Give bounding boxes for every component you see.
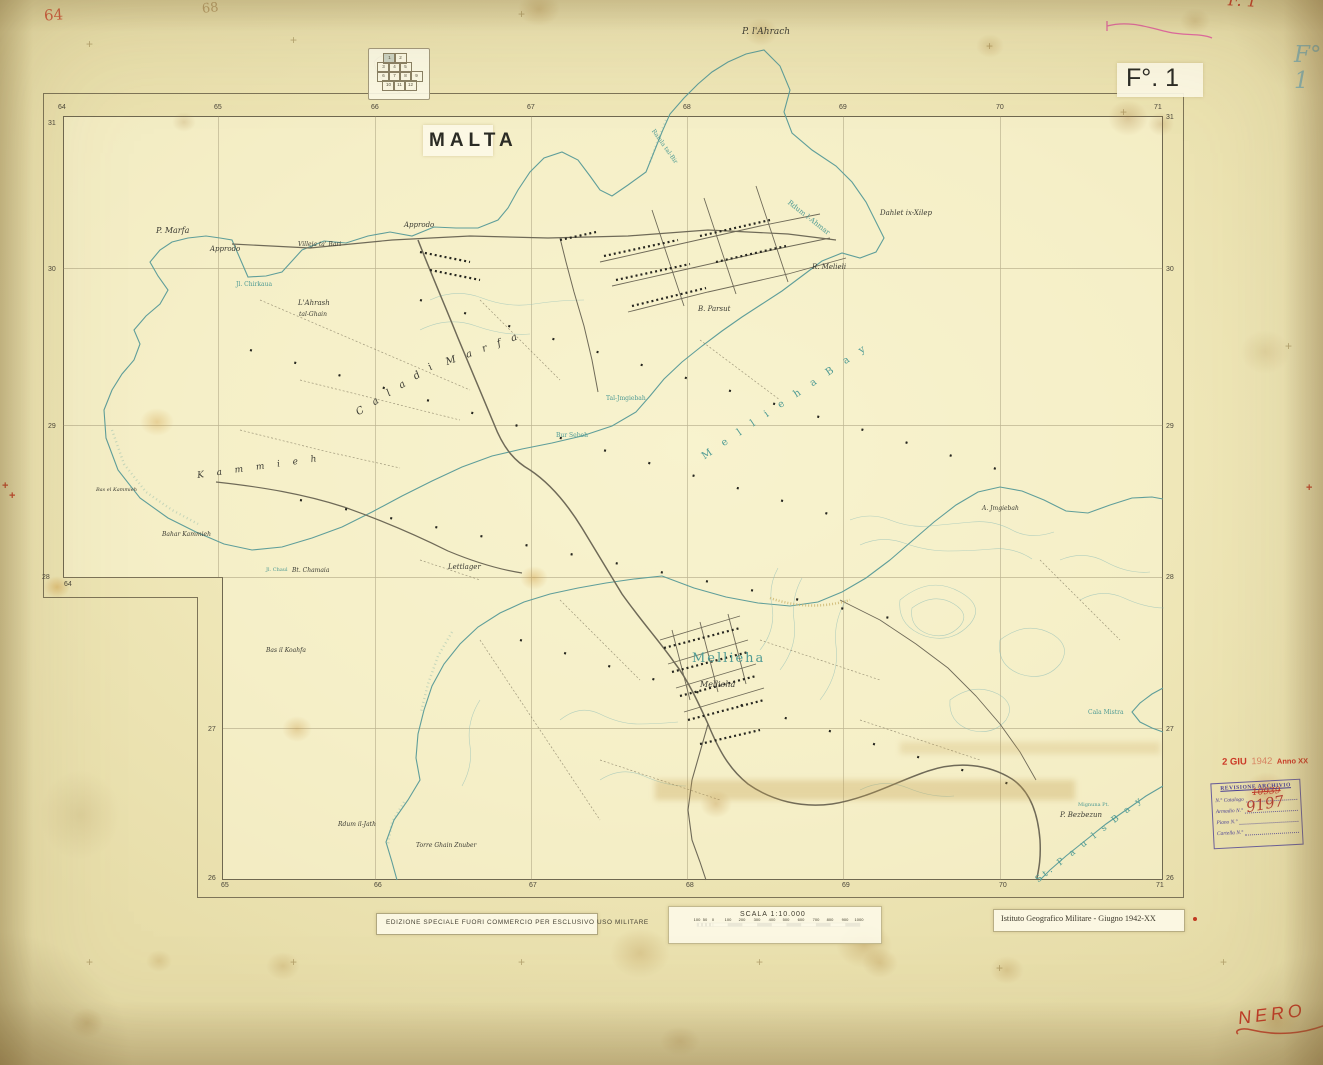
registration-cross: + — [1120, 106, 1127, 118]
map-label: Bur Sebeh — [556, 433, 588, 439]
map-label: Villeja ta' Bari — [298, 242, 341, 248]
registration-cross: + — [996, 962, 1003, 974]
map-label: L'Ahrash — [298, 300, 330, 307]
map-label: A. Jmgiebah — [982, 506, 1019, 512]
grid-number: 69 — [839, 104, 847, 111]
archive-stamp-row-label: Cartella N.° — [1217, 830, 1244, 837]
index-cell: 12 — [404, 80, 417, 91]
grid-number: 64 — [58, 104, 66, 111]
pencil-note-68: 68 — [201, 1, 219, 16]
nero-underline — [1232, 1022, 1323, 1042]
registration-cross: + — [290, 956, 297, 968]
date-stamp: 2 GIU 1942 Anno XX — [1222, 750, 1308, 770]
map-label: Mellieha — [700, 681, 735, 689]
map-label: P. l'Ahrach — [742, 28, 790, 37]
map-label: Jl. Chirkaua — [236, 282, 272, 288]
scale-tick: 100 — [725, 918, 732, 922]
registration-cross: + — [756, 956, 763, 968]
grid-number: 71 — [1154, 104, 1162, 111]
map-label: Approdo — [404, 222, 434, 229]
grid-number: 27 — [208, 726, 216, 733]
grid-number: 28 — [42, 574, 50, 581]
grid-number: 31 — [48, 120, 56, 127]
grid-number: 66 — [374, 882, 382, 889]
grid-number: 64 — [64, 581, 72, 588]
map-label: P. Marfa — [156, 227, 189, 235]
grid-number: 28 — [1166, 574, 1174, 581]
sheet-number: F°. 1 — [1126, 64, 1179, 93]
map-label: Jl. Chaul — [266, 568, 288, 573]
date-stamp-year: 1942 — [1251, 756, 1272, 767]
grid-number: 26 — [208, 875, 216, 882]
map-label: Cala Mistra — [1088, 710, 1124, 716]
scale-tick: 900 — [842, 918, 849, 922]
scale-tick: 700 — [813, 918, 820, 922]
grid-number: 26 — [1166, 875, 1174, 882]
grid-number: 68 — [683, 104, 691, 111]
scale-tick: 400 — [769, 918, 776, 922]
map-label: Approdo — [210, 246, 240, 253]
scale-tick: 50 — [703, 918, 707, 922]
archive-stamp-row-label: Piano N.° — [1216, 819, 1238, 826]
grid-number: 65 — [221, 882, 229, 889]
scale-tick: 300 — [754, 918, 761, 922]
pencil-note-64: 64 — [44, 7, 64, 23]
map-label: Rdum il-Jath — [338, 822, 376, 828]
map-label: tal-Ghain — [299, 312, 327, 318]
red-dot-mark — [1193, 917, 1197, 921]
grid-number: 29 — [48, 423, 56, 430]
grid-number: 29 — [1166, 423, 1174, 430]
map-label: Dahlet ix-Xilep — [880, 210, 932, 217]
registration-cross: + — [86, 38, 93, 50]
map-label: Bt. Chamaia — [292, 568, 329, 574]
scale-tick: 1000 — [855, 918, 864, 922]
red-handwritten-f1: F. 1 — [1228, 0, 1258, 10]
map-title: MALTA — [429, 130, 518, 152]
registration-cross: + — [290, 34, 297, 46]
grid-number: 31 — [1166, 114, 1174, 121]
map-label: Tal-Jmgiebah — [606, 396, 646, 402]
registration-cross: + — [518, 8, 525, 20]
map-label: R. Melieli — [812, 264, 846, 271]
registration-cross: + — [986, 40, 993, 52]
grid-number: 67 — [529, 882, 537, 889]
map-label: Mellieha — [692, 652, 765, 665]
credit-text: Istituto Geografico Militare - Giugno 19… — [1001, 914, 1156, 923]
edition-note: EDIZIONE SPECIALE FUORI COMMERCIO PER ES… — [386, 919, 649, 926]
registration-cross: + — [1220, 956, 1227, 968]
red-edge-mark: + — [9, 491, 15, 502]
pink-pencil-mark — [1107, 21, 1212, 38]
date-stamp-anno: Anno XX — [1277, 756, 1308, 766]
map-label: Bas il Koahfa — [266, 648, 306, 654]
red-edge-mark: + — [2, 481, 8, 492]
red-edge-mark: + — [1306, 483, 1312, 494]
map-label: Mignuna Pt. — [1078, 803, 1109, 808]
grid-number: 68 — [686, 882, 694, 889]
map-label: P. Bezbezun — [1060, 812, 1102, 819]
scale-tick: 600 — [798, 918, 805, 922]
grid-number: 30 — [48, 266, 56, 273]
grid-number: 69 — [842, 882, 850, 889]
date-stamp-day-month: 2 GIU — [1222, 756, 1247, 767]
grid-number: 67 — [527, 104, 535, 111]
registration-cross: + — [518, 956, 525, 968]
grid-number: 70 — [999, 882, 1007, 889]
map-label: Lettlager — [448, 564, 481, 571]
map-label: Bas el Kammieh — [96, 488, 137, 493]
grid-number: 66 — [371, 104, 379, 111]
scale-tick: 800 — [827, 918, 834, 922]
scale-tick: 500 — [783, 918, 790, 922]
map-sheet: + + + + + + + + + + + + + + + MALTA F°. … — [0, 0, 1323, 1065]
map-label: B. Parsut — [698, 306, 730, 313]
registration-cross: + — [86, 956, 93, 968]
grid-number: 65 — [214, 104, 222, 111]
grid-number: 70 — [996, 104, 1004, 111]
scale-tick: 100 — [694, 918, 701, 922]
blue-handwritten-f1: F° 1 — [1294, 42, 1323, 94]
scale-tick: 0 — [712, 918, 714, 922]
registration-cross: + — [1285, 340, 1292, 352]
scale-tick: 200 — [739, 918, 746, 922]
grid-number: 30 — [1166, 266, 1174, 273]
map-label: Bahar Kammieh — [162, 532, 211, 538]
index-diagram: 123456789101112 — [368, 48, 430, 100]
grid-number: 27 — [1166, 726, 1174, 733]
grid-number: 71 — [1156, 882, 1164, 889]
map-label: Torre Ghain Znuber — [416, 843, 476, 849]
